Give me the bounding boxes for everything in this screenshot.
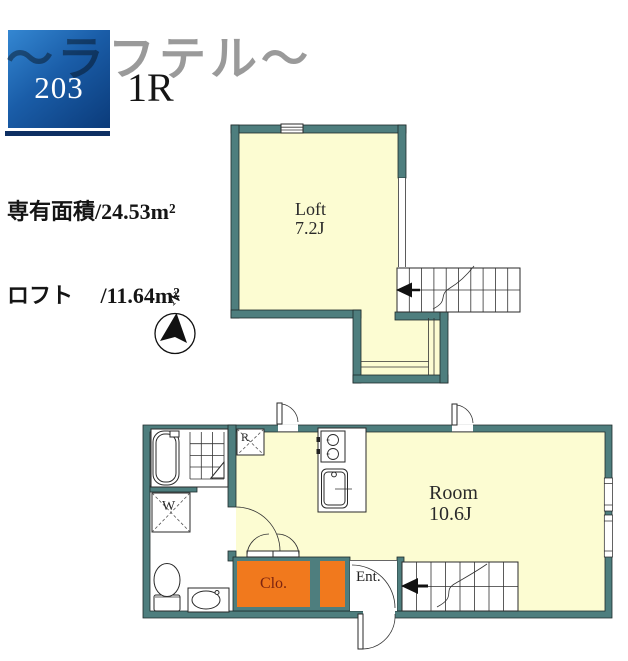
room-type: 1R bbox=[127, 64, 174, 111]
entrance-label: Ent. bbox=[356, 569, 381, 586]
loft-name: Loft bbox=[295, 200, 326, 219]
bathtub-icon bbox=[151, 429, 228, 487]
top-door-left-icon bbox=[277, 403, 298, 432]
loft-label: Loft 7.2J bbox=[295, 200, 326, 238]
floorplan-page: 203 〜ラフテル〜 1R 専有面積/24.53m² ロフト /11.64m² bbox=[0, 0, 628, 661]
loft-window-icon bbox=[281, 124, 303, 133]
loft-size: 7.2J bbox=[295, 219, 326, 238]
refrigerator-label: R bbox=[241, 430, 249, 445]
compass-icon bbox=[155, 313, 195, 354]
loft-floor-plan bbox=[231, 124, 520, 383]
right-window-lower-icon bbox=[604, 515, 612, 557]
room-stairs-icon bbox=[401, 562, 518, 611]
room-label: Room 10.6J bbox=[429, 483, 478, 525]
washbasin-icon bbox=[188, 588, 229, 612]
room-size: 10.6J bbox=[429, 504, 478, 525]
right-window-upper-icon bbox=[604, 478, 612, 511]
room-floor-plan bbox=[143, 403, 613, 649]
toilet-icon bbox=[154, 564, 180, 612]
washer-label: W bbox=[162, 499, 175, 515]
top-door-right-icon bbox=[452, 404, 473, 432]
kitchen-icon bbox=[317, 428, 367, 512]
room-name: Room bbox=[429, 483, 478, 504]
closet-label: Clo. bbox=[237, 575, 310, 593]
loft-open-edge bbox=[398, 178, 406, 267]
loft-stairs-icon bbox=[396, 266, 520, 312]
